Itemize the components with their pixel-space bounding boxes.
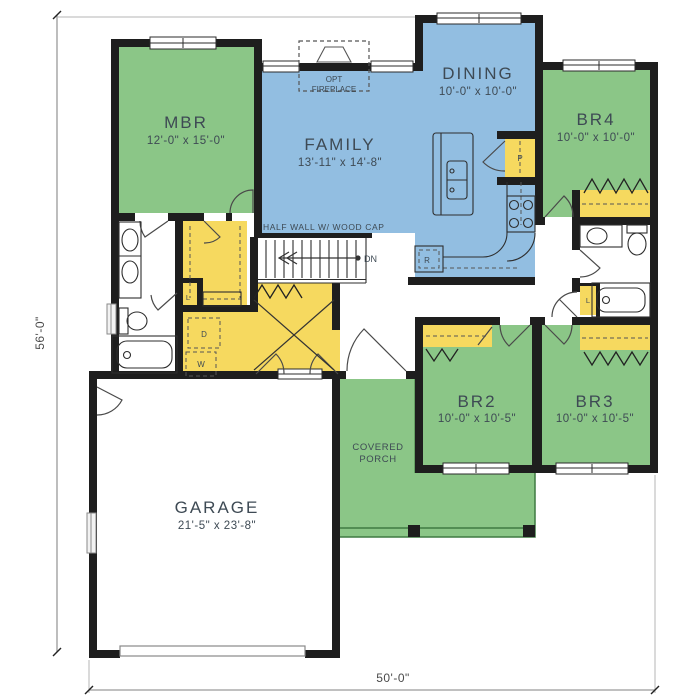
mbr-label: MBR: [164, 113, 208, 132]
depth-dimension-label: 56'-0": [33, 316, 47, 350]
br4-label: BR4: [576, 110, 615, 129]
master-bath-door: [140, 221, 168, 237]
master-linen-label: L: [186, 293, 190, 302]
master-vanity: [119, 222, 141, 298]
porch-post-right: [523, 525, 535, 537]
hall-bath-door: [580, 250, 600, 277]
garage-window: [87, 513, 96, 553]
stairs: [256, 233, 372, 283]
hall-tub: [592, 283, 650, 317]
washer-label: W: [197, 360, 205, 369]
water-closet-door: [151, 293, 177, 310]
br2-label: BR2: [457, 392, 496, 411]
br2-window: [443, 463, 509, 474]
fireplace-label-line1: OPT: [326, 75, 343, 84]
front-entry-door: [347, 329, 406, 371]
master-toilet: [119, 308, 147, 334]
br3-label: BR3: [575, 392, 614, 411]
stairs-dn-label: DN: [364, 254, 377, 264]
dryer-label: D: [201, 330, 207, 339]
stair-treads: [266, 240, 356, 278]
br3-dims: 10'-0" x 10'-5": [556, 413, 634, 425]
garage-dims: 21'-5" x 23'-8": [178, 520, 256, 532]
porch-post-left: [408, 525, 420, 537]
half-wall-note: HALF WALL W/ WOOD CAP: [263, 222, 385, 232]
dining-window: [437, 13, 521, 24]
mbr-window: [150, 37, 216, 49]
family-dims: 13'-11" x 14'-8": [298, 157, 382, 169]
br4-dims: 10'-0" x 10'-0": [557, 132, 635, 144]
porch-label-line2: PORCH: [359, 454, 396, 465]
family-window-left: [263, 61, 299, 72]
porch-label-line1: COVERED: [352, 442, 403, 453]
refrigerator-label: R: [424, 256, 430, 265]
family-label: FAMILY: [304, 135, 375, 154]
pantry-label: P: [517, 154, 522, 163]
dining-dims: 10'-0" x 10'-0": [439, 86, 517, 98]
tub-room-door: [552, 292, 577, 317]
half-wall: [256, 233, 372, 238]
mbr-dims: 12'-0" x 15'-0": [147, 135, 225, 147]
br3-window: [556, 463, 628, 474]
floor-plan-canvas: MBR 12'-0" x 15'-0" FAMILY 13'-11" x 14'…: [0, 0, 700, 700]
master-tub: [112, 336, 177, 373]
width-dimension-label: 50'-0": [376, 671, 410, 685]
garage-label: GARAGE: [175, 498, 260, 517]
hall-vanity: [580, 225, 622, 247]
family-window-right: [371, 61, 413, 72]
br4-window: [563, 60, 635, 71]
br2-dims: 10'-0" x 10'-5": [438, 413, 516, 425]
hall-toilet: [627, 225, 647, 255]
hall-linen-label: L: [586, 296, 590, 305]
floor-plan-drawing: MBR 12'-0" x 15'-0" FAMILY 13'-11" x 14'…: [0, 0, 700, 700]
dining-label: DINING: [442, 64, 514, 83]
garage-service-door: [97, 387, 122, 415]
garage-door: [120, 646, 305, 656]
fireplace-label-line2: FIREPLACE: [312, 85, 356, 94]
bath-window: [107, 304, 116, 334]
